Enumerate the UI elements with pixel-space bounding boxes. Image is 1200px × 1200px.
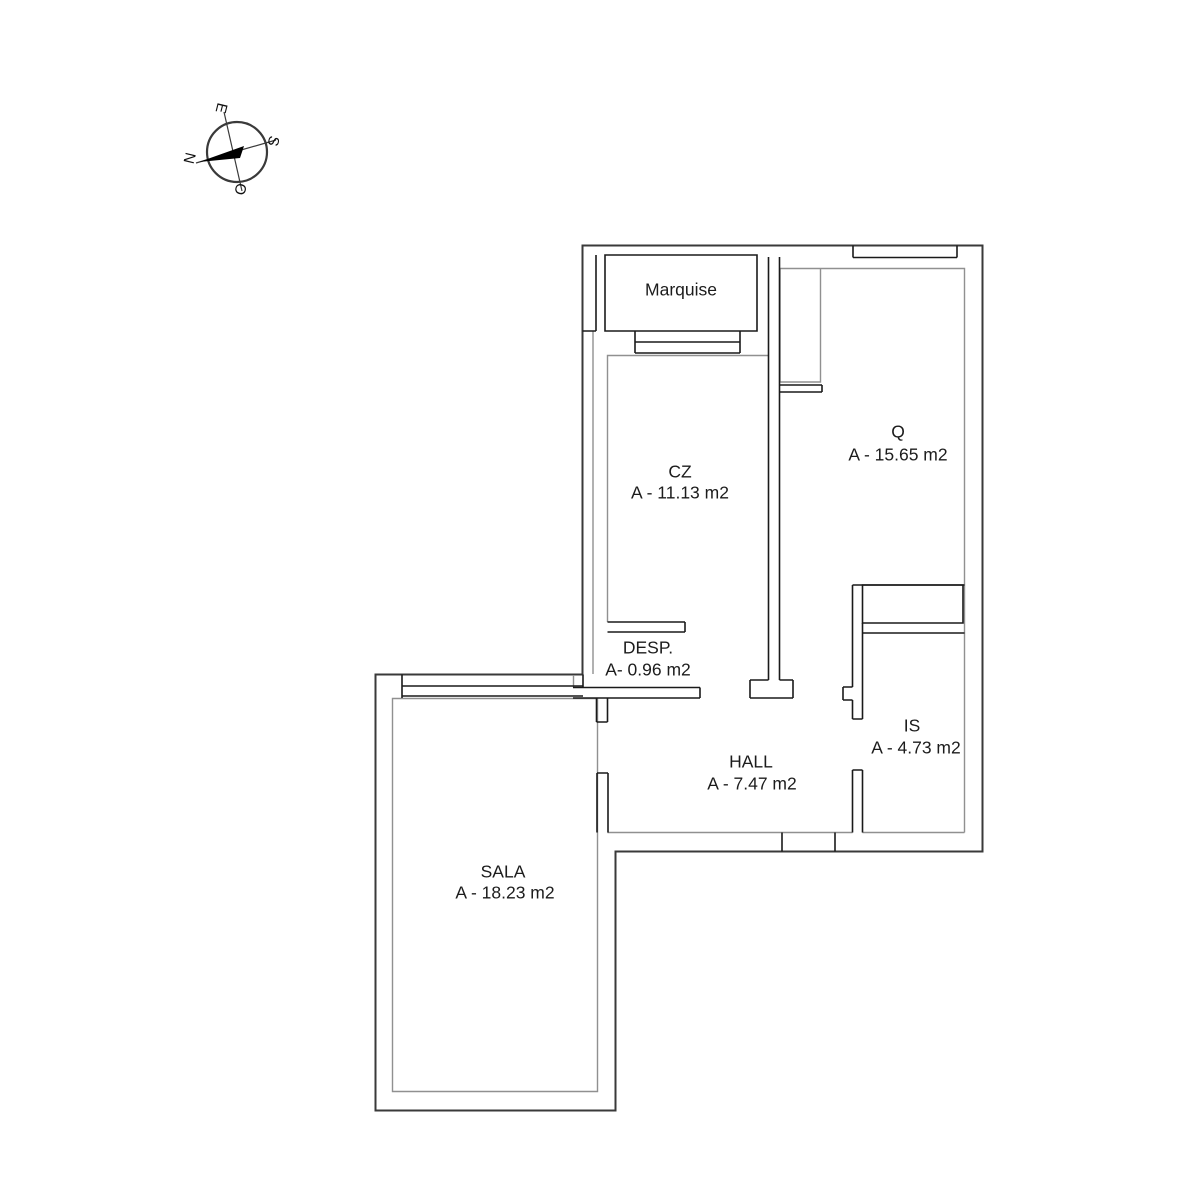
room-area-cz: A - 11.13 m2	[631, 484, 729, 502]
room-area-sala: A - 18.23 m2	[455, 884, 554, 902]
room-label-hall: HALL	[729, 753, 773, 771]
room-area-q: A - 15.65 m2	[848, 446, 947, 464]
floor-plan-drawing	[0, 0, 1200, 1200]
interior-finish-lines	[393, 269, 965, 1092]
floor-plan-page: N E S O Marquise CZ A - 11.13 m2 Q A - 1…	[0, 0, 1200, 1200]
room-area-desp: A- 0.96 m2	[605, 661, 691, 679]
room-label-q: Q	[891, 423, 905, 441]
room-area-is: A - 4.73 m2	[871, 739, 961, 757]
interior-partitions	[402, 246, 965, 852]
room-label-desp: DESP.	[623, 639, 673, 657]
room-label-sala: SALA	[481, 863, 526, 881]
room-area-hall: A - 7.47 m2	[707, 775, 797, 793]
compass-needle-icon	[199, 146, 244, 162]
room-label-is: IS	[904, 717, 921, 735]
room-label-marquise: Marquise	[645, 281, 717, 299]
room-label-cz: CZ	[668, 463, 691, 481]
compass-rose	[196, 112, 276, 191]
